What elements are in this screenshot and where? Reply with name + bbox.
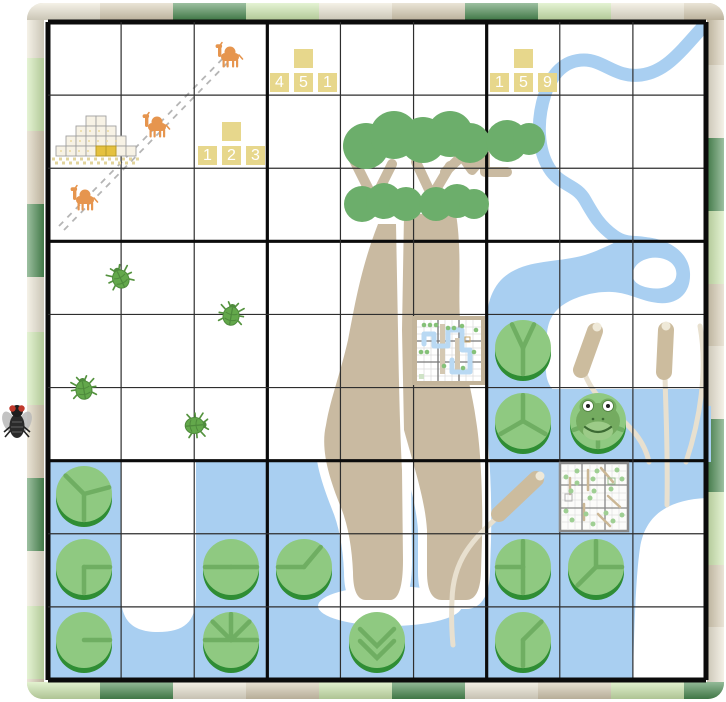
clue-blank-tile xyxy=(514,49,533,68)
beetle-icon[interactable] xyxy=(69,373,100,408)
mini-map-river-icon[interactable] xyxy=(415,318,483,383)
clue-number-tile[interactable]: 1 xyxy=(198,146,217,165)
game-board-screen: 451 123 159 const data = JSON.parse(docu… xyxy=(0,0,726,702)
clue-123[interactable]: 123 xyxy=(198,122,260,165)
clue-number-tile[interactable]: 4 xyxy=(270,73,289,92)
camel-icon[interactable] xyxy=(140,110,174,145)
clue-blank-tile xyxy=(294,49,313,68)
clue-number-tile[interactable]: 3 xyxy=(246,146,265,165)
clue-number-tile[interactable]: 1 xyxy=(318,73,337,92)
camel-icon[interactable] xyxy=(213,40,247,75)
mini-map-reeds-icon[interactable] xyxy=(560,463,628,531)
clue-451[interactable]: 451 xyxy=(270,49,332,92)
clue-blank-tile xyxy=(222,122,241,141)
beetle-icon[interactable] xyxy=(216,299,247,334)
clue-number-tile[interactable]: 9 xyxy=(538,73,557,92)
clue-number-tile[interactable]: 5 xyxy=(514,73,533,92)
beetle-icon[interactable] xyxy=(177,411,210,440)
fly-icon[interactable] xyxy=(0,400,34,451)
pyramid-icon xyxy=(52,116,140,163)
camel-icon[interactable] xyxy=(68,183,102,218)
frog-icon[interactable] xyxy=(576,399,620,441)
clue-159[interactable]: 159 xyxy=(490,49,552,92)
clue-number-tile[interactable]: 2 xyxy=(222,146,241,165)
clue-number-tile[interactable]: 5 xyxy=(294,73,313,92)
clue-number-tile[interactable]: 1 xyxy=(490,73,509,92)
foreground-items xyxy=(0,0,726,702)
